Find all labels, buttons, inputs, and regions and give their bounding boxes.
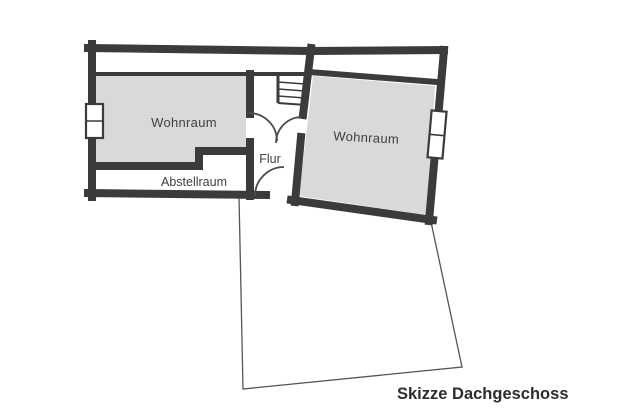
label-flur: Flur	[259, 152, 281, 166]
floorplan-sketch: Wohnraum Wohnraum Flur Abstellraum Skizz…	[0, 0, 640, 414]
window-right-icon	[428, 110, 447, 158]
floorplan-page: Wohnraum Wohnraum Flur Abstellraum Skizz…	[0, 0, 640, 414]
stair-tread	[278, 96, 305, 98]
label-abstellraum: Abstellraum	[161, 175, 227, 189]
wall-outer-top	[88, 48, 444, 51]
room-wohnraum-right	[299, 76, 435, 215]
label-wohnraum-left: Wohnraum	[151, 115, 217, 130]
stair-tread	[278, 89, 305, 91]
window-left-icon	[86, 104, 103, 138]
caption-title: Skizze Dachgeschoss	[397, 385, 569, 403]
wall-outer-bottom-left	[88, 193, 266, 195]
stair-tread	[278, 82, 305, 84]
